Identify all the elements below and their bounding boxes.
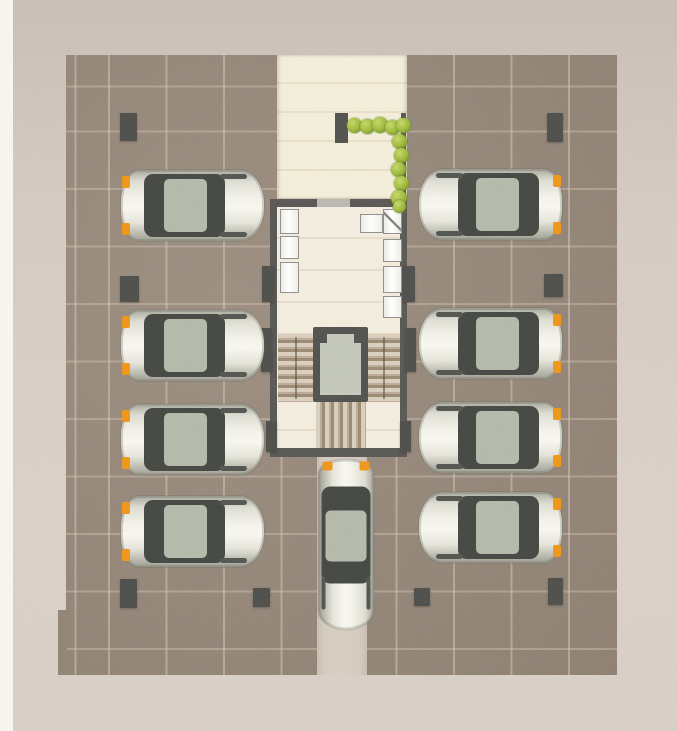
car-roof (164, 413, 207, 467)
planter-wall (335, 113, 348, 143)
car-side-window (220, 408, 247, 413)
cabinet-panel (360, 214, 383, 233)
car-roof (164, 319, 207, 373)
car-roof (476, 501, 519, 555)
car-signal-light (553, 545, 561, 557)
parked-car-right-2 (419, 308, 562, 379)
parked-car-left-1 (121, 170, 264, 241)
column-pillar (266, 421, 277, 452)
cabinet-panel (280, 236, 299, 259)
column-pillar (405, 328, 416, 372)
car-side-window (220, 466, 247, 471)
car-side-window (220, 558, 247, 563)
car-signal-light (323, 461, 332, 470)
car-signal-light (122, 549, 130, 561)
car-signal-light (360, 461, 369, 470)
hedge-bush (394, 148, 409, 163)
car-signal-light (122, 363, 130, 375)
hedge-bush (391, 162, 406, 177)
cabinet-panel (383, 296, 402, 318)
car-roof (164, 179, 207, 233)
car-side-window (436, 370, 463, 375)
car-signal-light (122, 410, 130, 422)
car-side-window (220, 174, 247, 179)
stair-flight-right (368, 334, 400, 402)
parked-car-right-3 (419, 402, 562, 473)
cabinet-panel (383, 266, 402, 293)
car-side-window (436, 312, 463, 317)
stair-flight-lower (316, 402, 366, 448)
column-pillar (544, 274, 563, 297)
car-signal-light (553, 314, 561, 326)
car-signal-light (553, 408, 561, 420)
car-side-window (322, 577, 326, 609)
hedge-bush (394, 176, 409, 191)
car-signal-light (122, 457, 130, 469)
car-signal-light (553, 222, 561, 234)
moving-car (319, 460, 374, 630)
car-signal-light (553, 175, 561, 187)
car-side-window (220, 232, 247, 237)
cabinet-panel (280, 209, 299, 234)
car-signal-light (122, 502, 130, 514)
entry-door-gap (317, 199, 350, 207)
car-side-window (436, 406, 463, 411)
parked-car-right-4 (419, 492, 562, 563)
car-side-window (366, 577, 370, 609)
car-side-window (220, 314, 247, 319)
car-roof (164, 505, 207, 559)
car-signal-light (553, 498, 561, 510)
cabinet-panel (280, 262, 299, 293)
floor-plan-canvas (0, 0, 677, 731)
car-roof (476, 178, 519, 232)
column-pillar (414, 588, 430, 606)
parked-car-right-1 (419, 169, 562, 240)
column-pillar (262, 266, 274, 302)
car-side-window (436, 496, 463, 501)
column-pillar (400, 421, 411, 452)
parked-car-left-4 (121, 496, 264, 567)
car-signal-light (553, 361, 561, 373)
car-signal-light (122, 223, 130, 235)
column-pillar (120, 113, 137, 141)
column-pillar (120, 276, 139, 302)
hedge-bush (392, 134, 407, 149)
parked-car-left-3 (121, 404, 264, 475)
car-side-window (220, 500, 247, 505)
car-roof (476, 317, 519, 371)
column-pillar (120, 579, 137, 608)
hedge-bush (393, 200, 406, 213)
cabinet-panel (383, 239, 402, 262)
car-roof (325, 511, 367, 562)
car-signal-light (553, 455, 561, 467)
stair-flight-left (278, 334, 313, 402)
hedge-bush (396, 118, 411, 133)
car-side-window (220, 372, 247, 377)
car-side-window (436, 554, 463, 559)
column-pillar (253, 588, 270, 607)
parking-lot-extension (58, 610, 67, 675)
column-pillar (547, 113, 563, 142)
column-pillar (548, 578, 563, 605)
car-roof (476, 411, 519, 465)
elevator (313, 327, 368, 402)
car-side-window (436, 464, 463, 469)
car-side-window (436, 231, 463, 236)
parked-car-left-2 (121, 310, 264, 381)
car-signal-light (122, 316, 130, 328)
page-margin-strip (0, 0, 13, 731)
column-pillar (403, 266, 415, 302)
car-side-window (436, 173, 463, 178)
car-signal-light (122, 176, 130, 188)
